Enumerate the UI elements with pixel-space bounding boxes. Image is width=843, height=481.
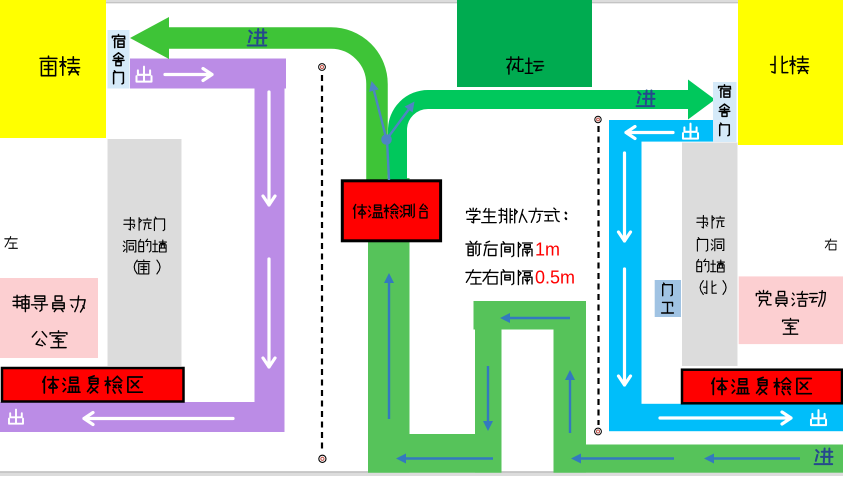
svg-text:1m: 1m xyxy=(535,240,560,260)
svg-text:0.5m: 0.5m xyxy=(535,268,575,288)
